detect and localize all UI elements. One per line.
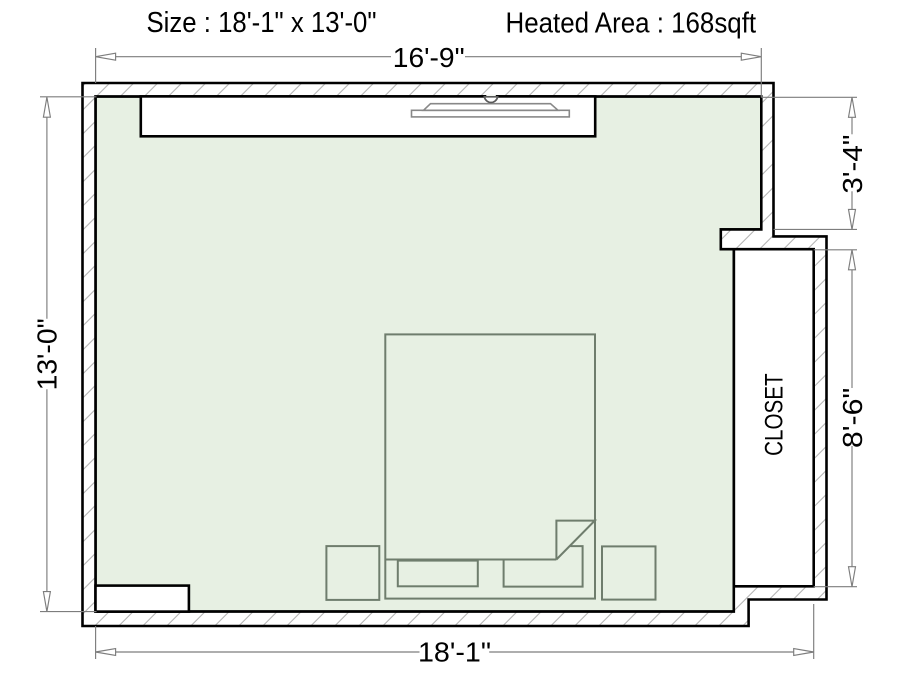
svg-text:13'-0": 13'-0" <box>31 318 62 390</box>
svg-text:CLOSET: CLOSET <box>761 373 789 456</box>
svg-text:18'-1": 18'-1" <box>418 636 491 667</box>
svg-text:Size : 18'-1" x 13'-0": Size : 18'-1" x 13'-0" <box>147 7 377 39</box>
svg-text:8'-6": 8'-6" <box>837 388 868 448</box>
svg-text:3'-4": 3'-4" <box>837 135 868 194</box>
svg-text:16'-9": 16'-9" <box>393 42 465 73</box>
svg-text:Heated Area : 168sqft: Heated Area : 168sqft <box>506 7 757 39</box>
